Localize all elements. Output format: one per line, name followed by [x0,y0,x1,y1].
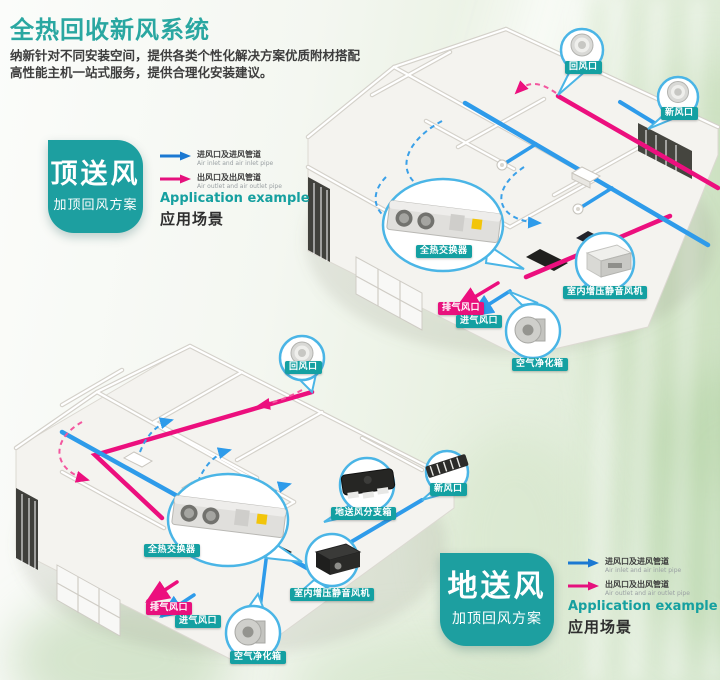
top-intake-vent-label: 进气风口 [456,315,502,328]
scheme-plan: 加顶回风方案 [452,608,542,628]
scheme-plan: 加顶回风方案 [53,194,137,213]
window-dark-left [308,177,330,262]
legend-inlet-cn: 进风口及进风管道 [197,150,273,160]
application-example-cn: 应用场景 [160,208,310,229]
legend-bottom: 进风口及进风管道 Air inlet and air inlet pipe 出风… [568,557,690,603]
promo-page: 全热回收新风系统 纳新针对不同安装空间，提供各类个性化解决方案优质附材搭配高性能… [0,0,720,680]
legend-outlet-en: Air outlet and air outlet pipe [605,590,690,597]
legend-outlet-row: 出风口及出风管道 Air outlet and air outlet pipe [160,173,282,190]
legend-inlet-row: 进风口及进风管道 Air inlet and air inlet pipe [568,557,690,574]
application-example-top: Application example 应用场景 [160,191,310,229]
window-dark-left [16,488,38,570]
outlet-arrow-icon [568,581,600,591]
round-diffuser-icon [571,34,593,56]
legend-inlet-cn: 进风口及进风管道 [605,557,681,567]
bottom-exhaust-vent-label: 排气风口 [146,602,192,615]
legend-inlet-en: Air inlet and air inlet pipe [197,160,273,167]
legend-outlet-row: 出风口及出风管道 Air outlet and air outlet pipe [568,580,690,597]
bottom-floor-supply-label: 地送风分支箱 [331,507,396,520]
legend-outlet-cn: 出风口及出风管道 [197,173,282,183]
scheme-box-floor-supply: 地送风 加顶回风方案 [440,553,554,646]
application-example-en: Application example [568,599,718,614]
outlet-arrow-icon [160,174,192,184]
bottom-return-air-label: 回风口 [285,361,322,374]
legend-inlet-row: 进风口及进风管道 Air inlet and air inlet pipe [160,150,282,167]
legend-top: 进风口及进风管道 Air inlet and air inlet pipe 出风… [160,150,282,196]
application-example-cn: 应用场景 [568,616,718,637]
round-diffuser-icon [668,82,689,103]
bottom-fresh-air-label: 新风口 [430,483,467,496]
inlet-arrow-icon [568,558,600,568]
top-return-air-label: 回风口 [565,61,602,74]
legend-inlet-en: Air inlet and air inlet pipe [605,567,681,574]
top-air-purifier-label: 空气净化箱 [512,358,568,371]
bottom-house-scene: 回风口 新风口 地送风分支箱 全热交换器 室内增压静音风机 排气风口 进气风口 … [2,330,470,680]
bottom-booster-fan-label: 室内增压静音风机 [290,588,374,601]
top-exhaust-vent-label: 排气风口 [438,302,484,315]
scheme-name: 地送风 [448,572,547,602]
page-title: 全热回收新风系统 [10,10,210,45]
scheme-box-top-supply: 顶送风 加顶回风方案 [48,140,143,233]
inlet-arrow-icon [160,151,192,161]
bottom-air-purifier-label: 空气净化箱 [230,651,286,664]
bottom-intake-vent-label: 进气风口 [175,615,221,628]
bottom-heat-exchanger-label: 全热交换器 [144,544,200,557]
top-fresh-air-label: 新风口 [661,107,698,120]
legend-outlet-cn: 出风口及出风管道 [605,580,690,590]
bottom-house-illustration [2,330,470,680]
scheme-name: 顶送风 [51,161,141,188]
top-heat-exchanger-label: 全热交换器 [416,245,472,258]
purifier-unit-icon [235,619,265,645]
application-example-bottom: Application example 应用场景 [568,599,718,637]
purifier-unit-icon [515,317,545,343]
legend-outlet-en: Air outlet and air outlet pipe [197,183,282,190]
application-example-en: Application example [160,191,310,206]
top-booster-fan-label: 室内增压静音风机 [563,286,647,299]
